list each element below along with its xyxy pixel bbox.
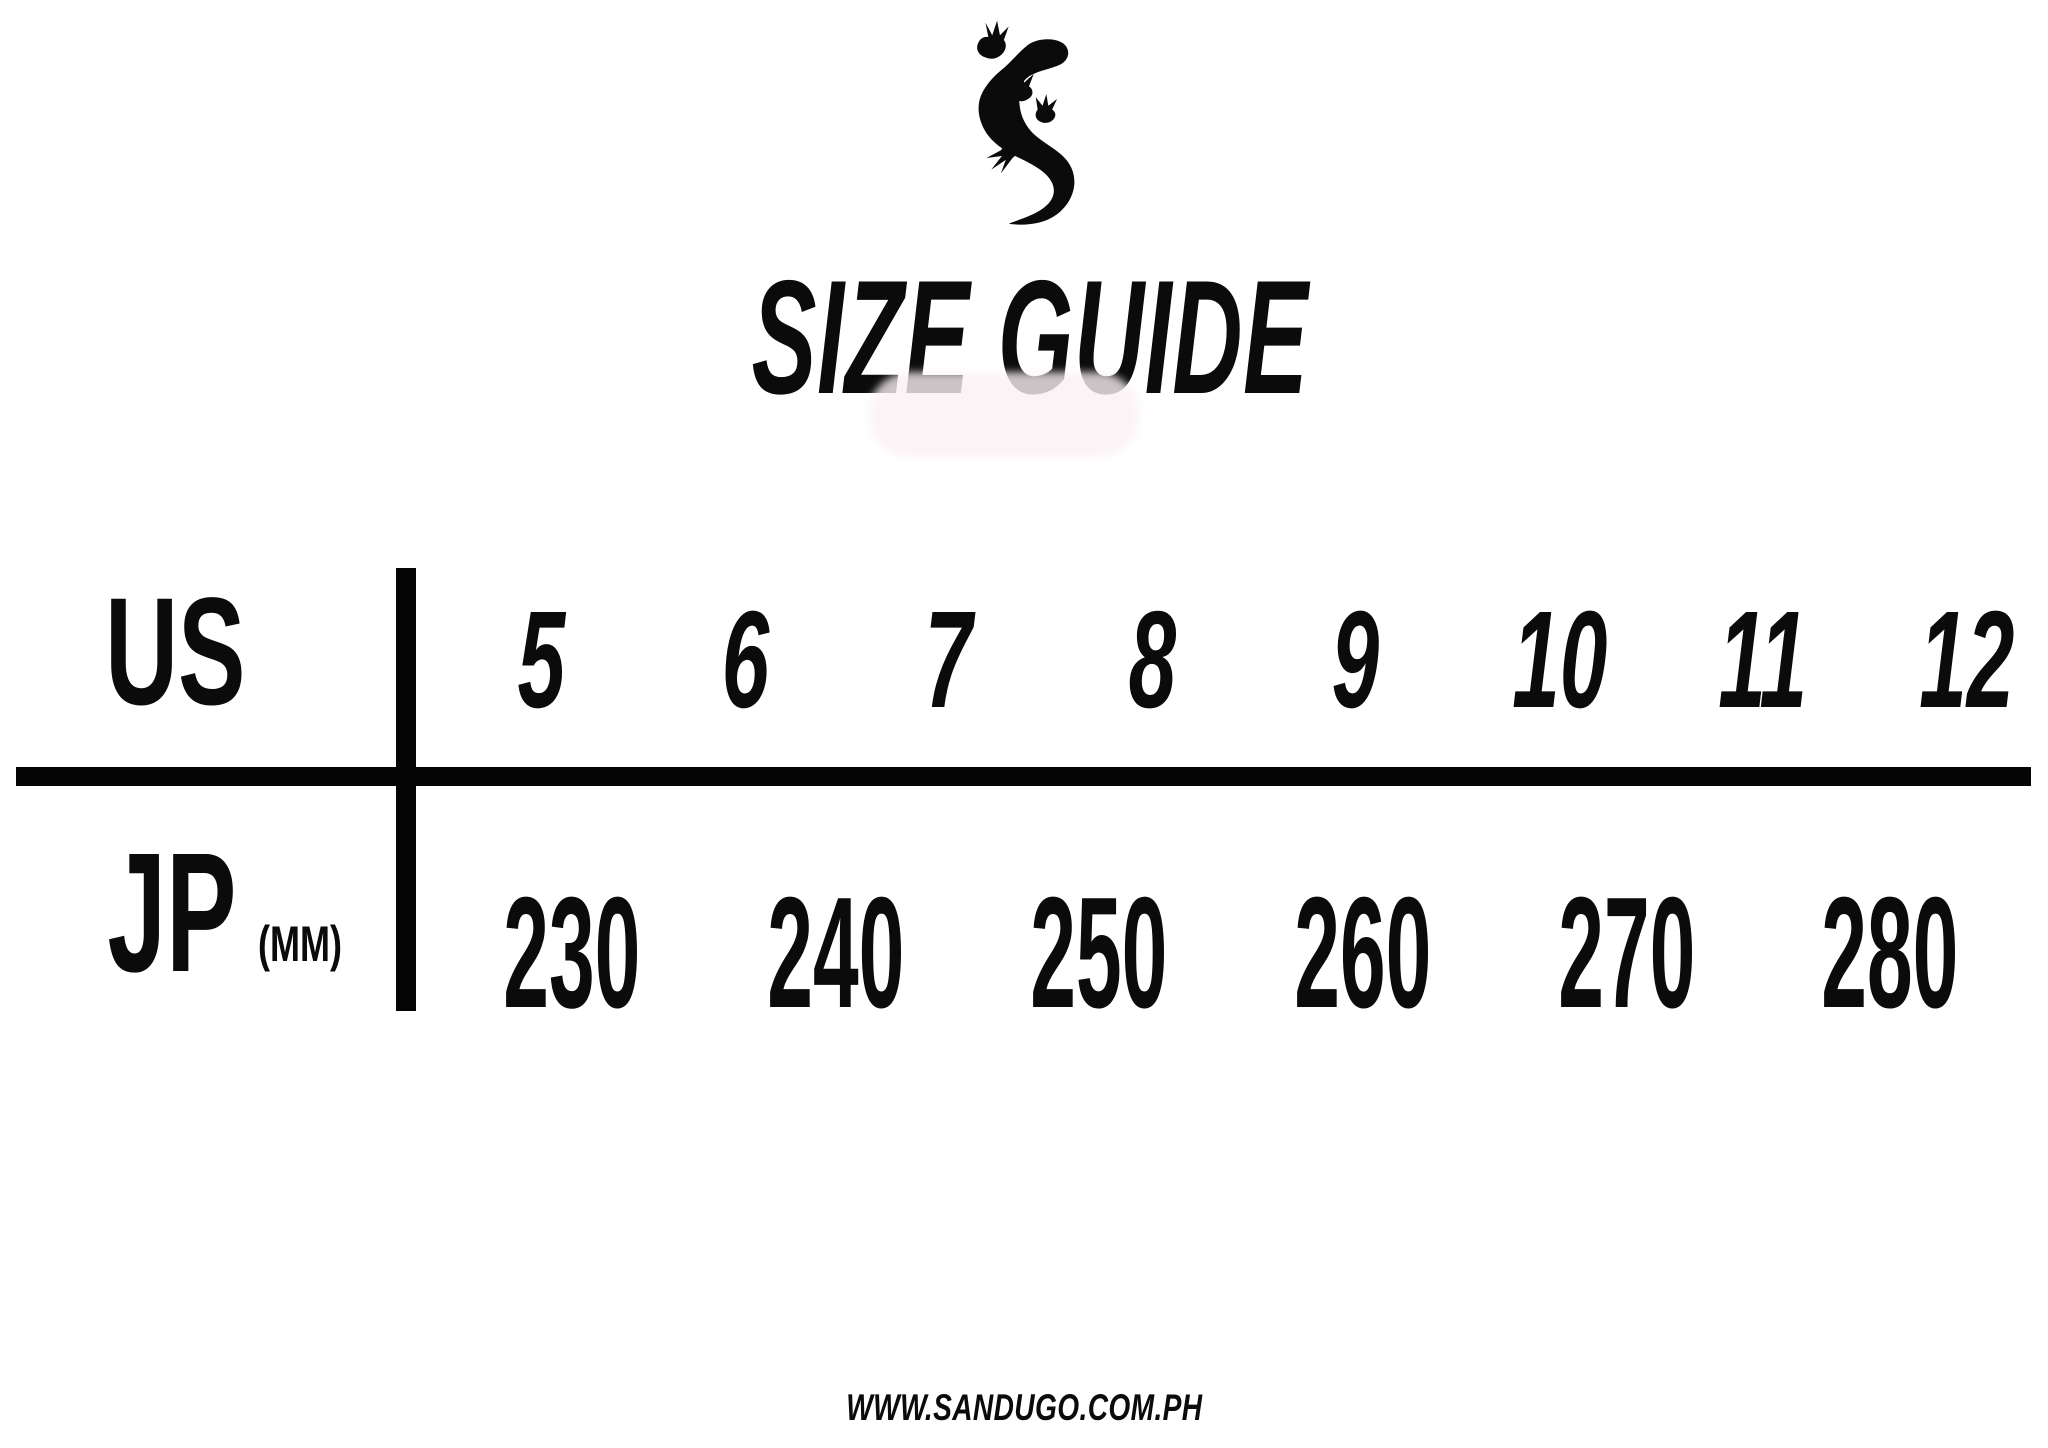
jp-size-cell: 290	[2022, 888, 2048, 1018]
row-label-us: US	[0, 587, 350, 717]
row-label-jp: JP (MM)	[0, 848, 406, 984]
jp-size-cell: 230	[440, 888, 704, 1018]
us-size-cell: 7	[847, 595, 1051, 725]
site-url: WWW.SANDUGO.COM.PH	[0, 1386, 2048, 1430]
jp-size-cell: 280	[1758, 888, 2022, 1018]
jp-size-cell: 260	[1231, 888, 1495, 1018]
jp-size-row: 230 240 250 260 270 280 290 300	[440, 888, 2048, 1018]
jp-size-cell: 240	[704, 888, 968, 1018]
site-url-text: WWW.SANDUGO.COM.PH	[846, 1386, 1202, 1430]
us-size-row: 5 6 7 8 9 10 11 12	[440, 595, 2048, 725]
erased-artifact-blob	[868, 372, 1140, 458]
us-size-cell: 12	[1865, 595, 2048, 725]
us-size-cell: 11	[1661, 595, 1865, 725]
gecko-logo-icon	[958, 12, 1098, 244]
us-size-cell: 9	[1254, 595, 1458, 725]
us-size-cell: 8	[1051, 595, 1255, 725]
us-size-cell: 5	[440, 595, 644, 725]
row-label-us-text: US	[105, 587, 245, 717]
us-size-cell: 10	[1458, 595, 1662, 725]
jp-size-cell: 250	[967, 888, 1231, 1018]
us-size-cell: 6	[644, 595, 848, 725]
size-guide-page: SIZE GUIDE US 5 6 7 8 9 10 11 12 JP (MM)…	[0, 0, 2048, 1448]
jp-unit-label: (MM)	[258, 916, 375, 972]
jp-size-cell: 270	[1495, 888, 1759, 1018]
table-horizontal-divider	[16, 767, 2031, 786]
